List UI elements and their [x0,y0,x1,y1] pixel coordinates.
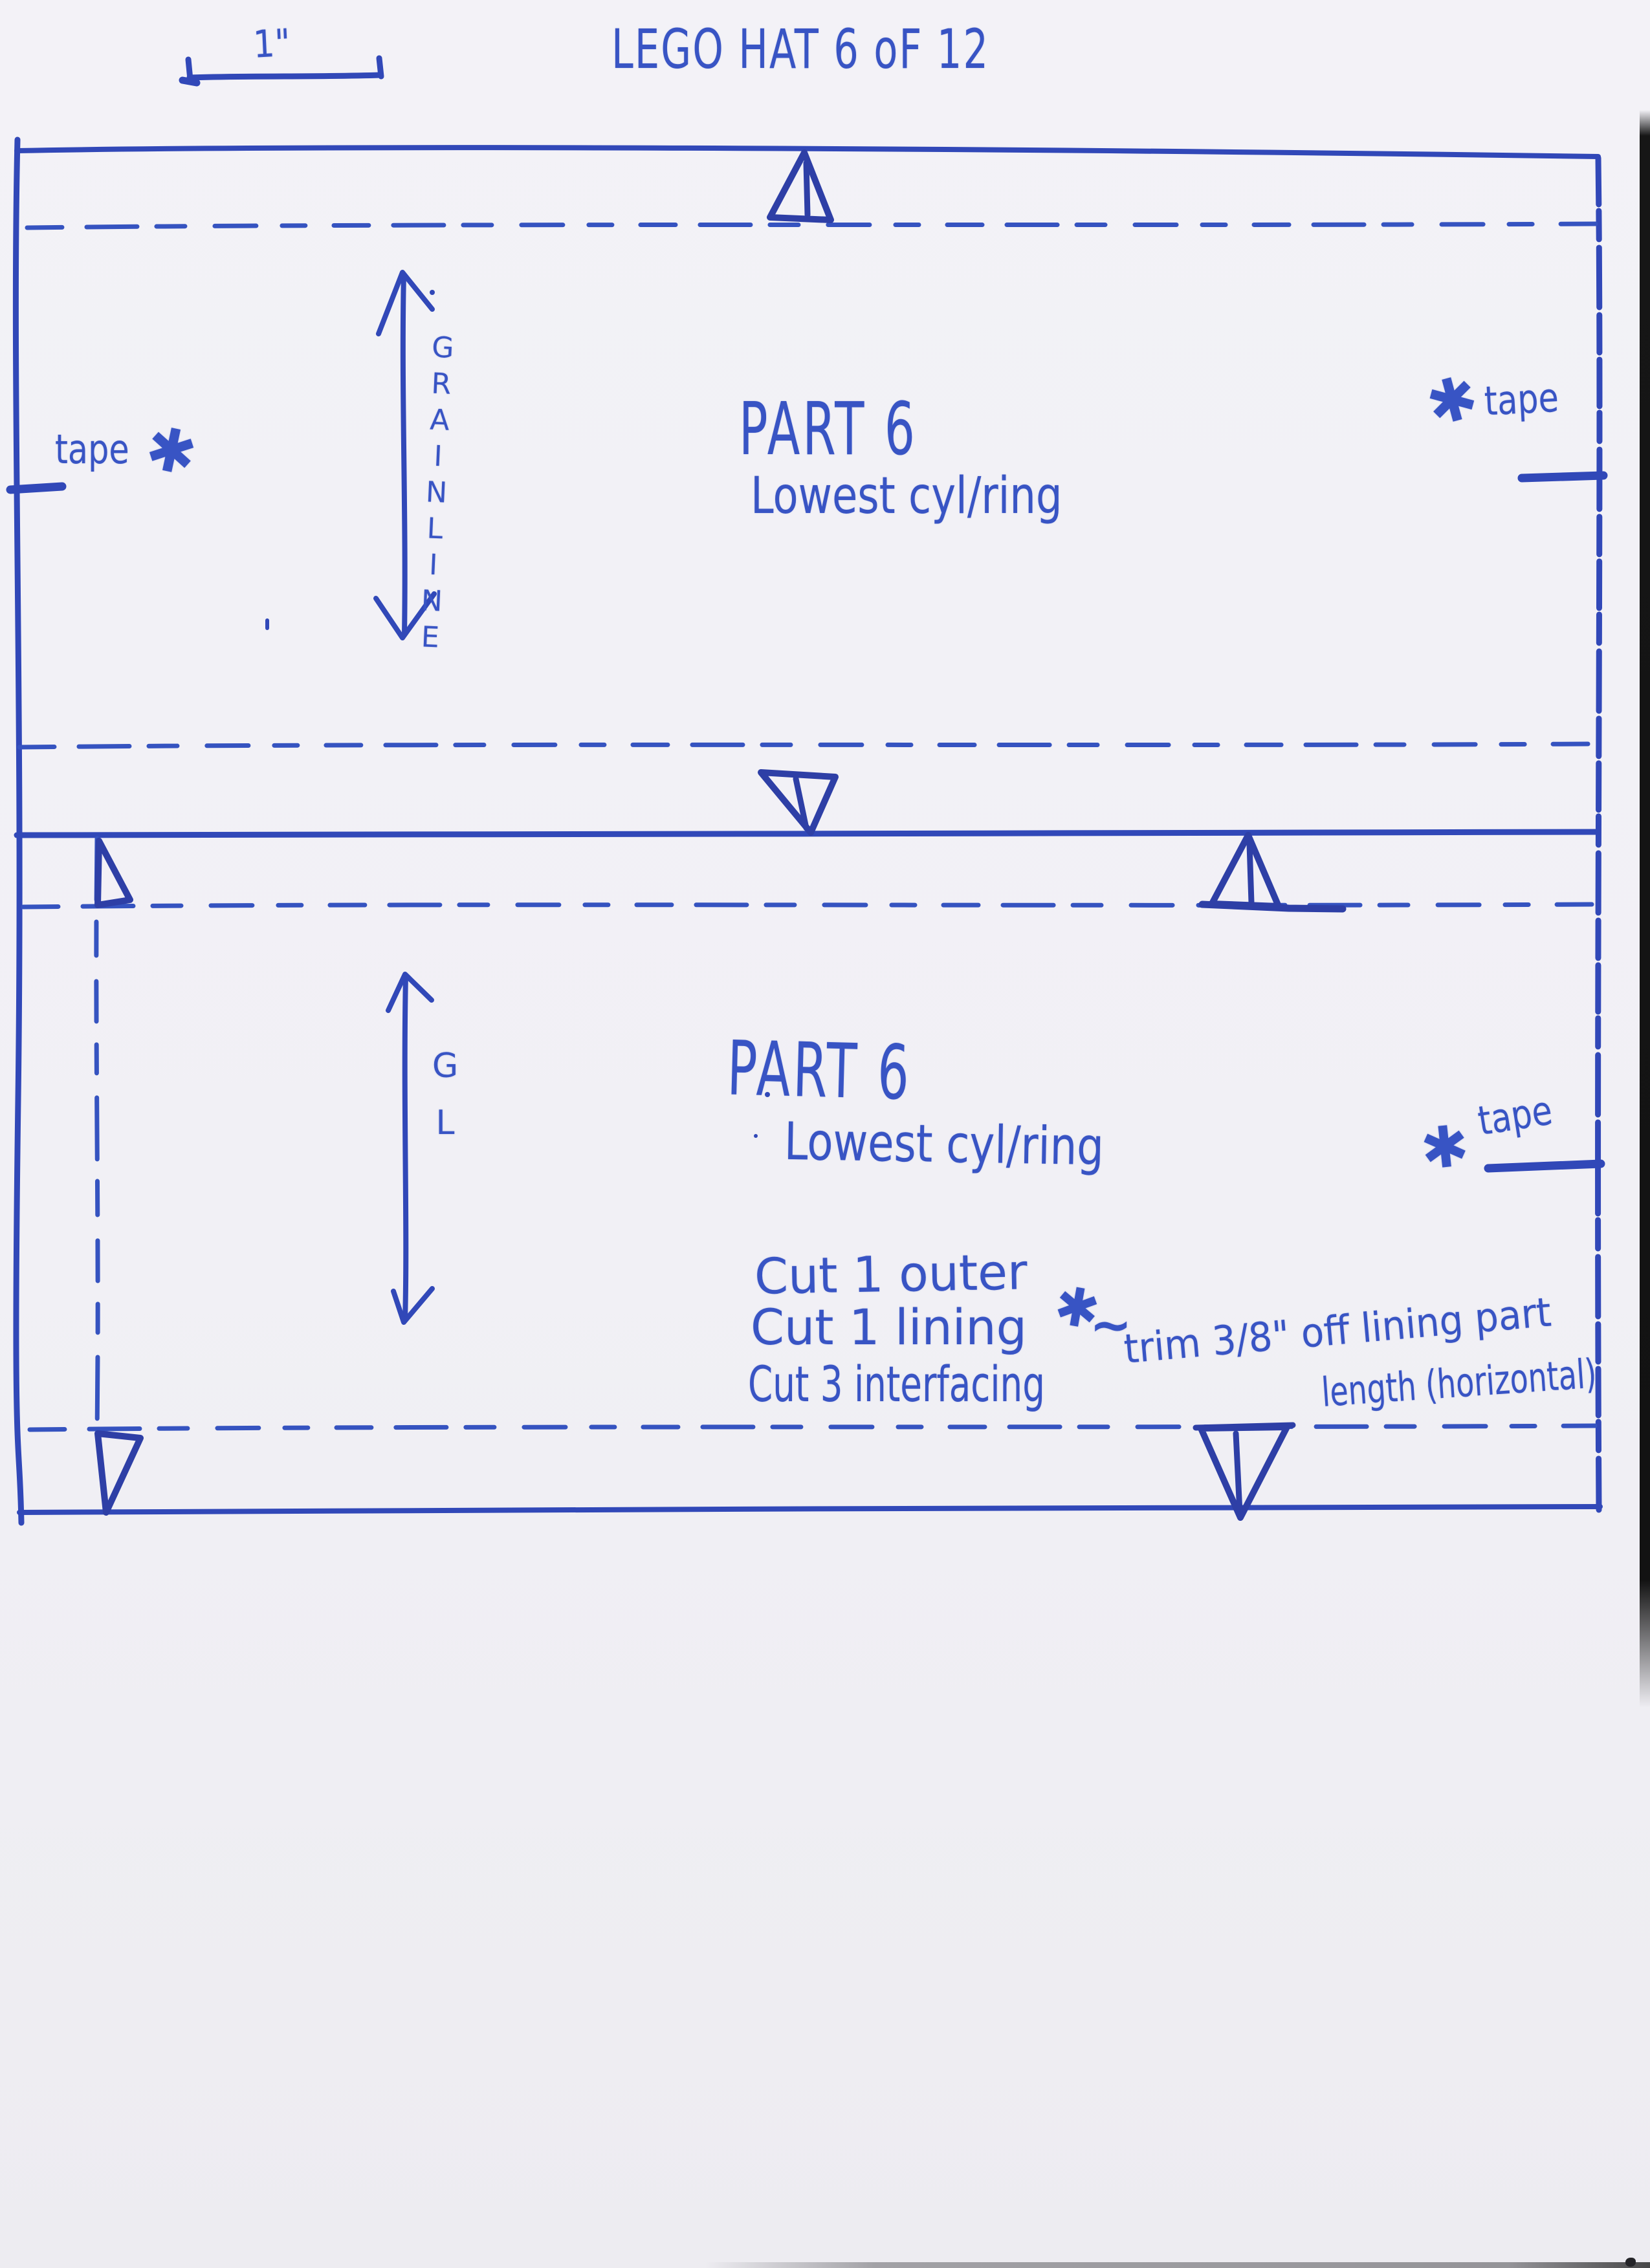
tape-tick-right-lower [1488,1164,1601,1168]
seam-line-lower-bottom [30,1426,1595,1430]
scale-bar-left-tick [188,60,190,80]
scale-bar-label: 1" [252,26,294,63]
tape-tick-right-upper [1522,475,1603,478]
seam-line-upper-top [27,224,1597,228]
part-sublabel-lower: Lowest cyl/ring [784,1116,1174,1175]
notch-triangle-bottom-left [98,1434,140,1512]
scale-bar-line [190,75,380,78]
scan-edge-artifact-right [1640,110,1650,1708]
tape-label-left: tape [55,430,146,470]
seam-line-upper-bottom [19,744,1593,747]
notch-inner-line [1249,844,1251,902]
notch-outline [1212,835,1279,906]
scale-bar-label-text: 1" [252,24,291,63]
notch-outline [1201,1427,1287,1518]
page-title: LEGO HAT 6 oF 12 [611,22,1136,76]
notch-inner-line [806,163,808,215]
pattern-scan-page: LEGO HAT 6 oF 12 1" GRAINLINE PART 6 Low… [0,0,1650,2268]
notch-outline [98,841,130,905]
tape-label-right-upper-text: tape [1483,378,1559,422]
part-label-lower-text: PART 6 [727,1031,913,1111]
scan-edge-artifact-blob [1625,2258,1636,2267]
arrow-head-top [388,974,432,1010]
arrow-head-bottom [393,1289,432,1322]
grainline-label-lower: GL [428,1047,462,1161]
ink-speck [430,290,435,295]
tape-star-icon-right-lower: ✱ [1418,1117,1472,1178]
tape-tick-left [10,486,62,490]
cut-instruction-line-3: Cut 3 interfacing [748,1360,1160,1409]
ink-speck [754,1134,758,1138]
cut-instruction-line-1: Cut 1 outer [754,1247,1033,1301]
notch-outline [98,1434,140,1512]
notch-outline [770,153,831,220]
scan-edge-artifact-bottom [705,2262,1650,2268]
outline-left [16,140,21,1523]
notch-triangle-top [770,153,831,220]
notch-base-overshoot [1196,1425,1293,1428]
arrow-shaft [403,274,405,634]
outline-bottom [19,1507,1600,1512]
notch-triangle-lower-top [1202,835,1343,909]
part-sublabel-upper-text: Lowest cyl/ring [751,471,1062,521]
cut-instruction-3-text: Cut 3 interfacing [748,1360,1045,1409]
arrow-shaft [405,976,406,1320]
seam-line-left-vertical [96,838,98,1432]
part-sublabel-lower-text: Lowest cyl/ring [784,1116,1104,1173]
notch-triangle-bottom-right [1196,1425,1293,1518]
notch-inner-line [1236,1434,1240,1512]
cut-instruction-line-2: Cut 1 lining [751,1303,1033,1352]
part-label-upper: PART 6 [739,393,1009,466]
ink-speck [265,618,269,630]
scale-bar-left-hook [182,80,197,83]
part-sublabel-upper: Lowest cyl/ring [751,471,1130,521]
ink-specks [265,290,770,1138]
cut-instruction-2-text: Cut 1 lining [751,1303,1027,1352]
part-label-lower: PART 6 [727,1031,1007,1113]
seam-line-lower-top [23,904,1595,907]
notch-triangle-lower-left-top [98,841,130,905]
cut-instruction-1-text: Cut 1 outer [754,1247,1028,1301]
tape-label-left-text: tape [55,430,129,470]
part-label-upper-text: PART 6 [739,393,918,466]
scale-bar-right-tick [379,58,381,76]
tape-label-right-upper: tape [1483,376,1576,421]
page-title-text: LEGO HAT 6 oF 12 [611,22,989,76]
tape-label-right-lower-text: tape [1475,1090,1555,1141]
notch-triangle-middle-down [761,772,835,833]
